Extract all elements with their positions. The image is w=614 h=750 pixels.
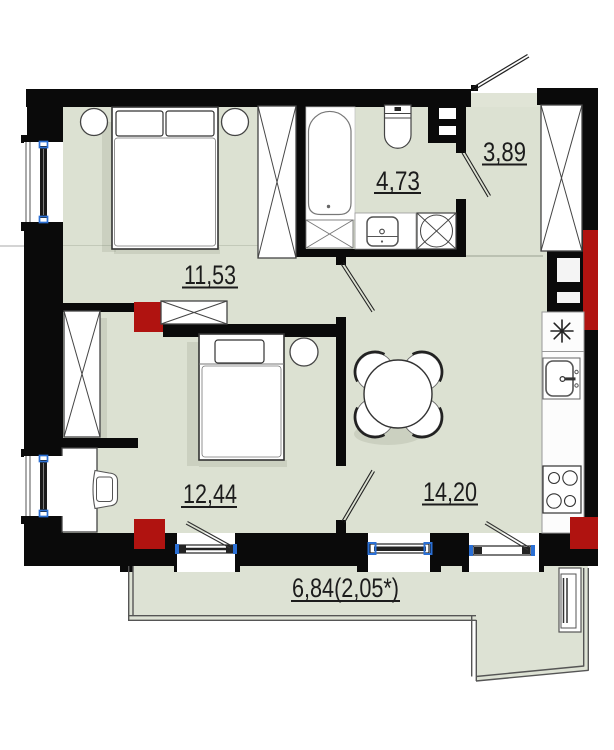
svg-text:3,89: 3,89 xyxy=(483,137,526,167)
svg-text:14,20: 14,20 xyxy=(423,477,477,507)
svg-text:4,73: 4,73 xyxy=(376,166,420,196)
svg-text:6,84(2,05*): 6,84(2,05*) xyxy=(292,573,399,603)
svg-text:12,44: 12,44 xyxy=(183,479,237,509)
svg-text:11,53: 11,53 xyxy=(184,260,236,290)
